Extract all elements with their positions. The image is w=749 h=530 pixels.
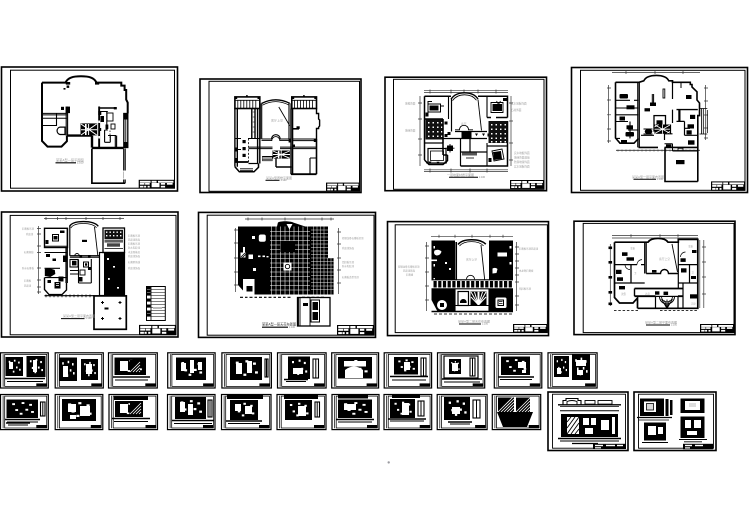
svg-text:石膏角线: 石膏角线 (24, 250, 34, 254)
svg-text:乳胶漆饰面: 乳胶漆饰面 (128, 254, 141, 258)
svg-text:石膏线: 石膏线 (406, 273, 414, 277)
svg-text:石膏板吊顶: 石膏板吊顶 (22, 227, 35, 231)
svg-text:防滑地砖饰面: 防滑地砖饰面 (514, 160, 530, 164)
svg-text:乳胶漆: 乳胶漆 (24, 284, 32, 288)
svg-text:客厅上空: 客厅上空 (466, 258, 477, 262)
svg-text:石膏阴角线: 石膏阴角线 (128, 260, 141, 264)
svg-text:石材饰面: 石材饰面 (511, 108, 522, 112)
svg-text:实木地板饰面: 实木地板饰面 (514, 151, 530, 155)
svg-text:乳胶漆饰面: 乳胶漆饰面 (342, 246, 355, 250)
svg-text:石膏板吊顶乳胶漆: 石膏板吊顶乳胶漆 (519, 247, 539, 251)
svg-text:实木地板饰面: 实木地板饰面 (514, 165, 530, 169)
svg-text:1:100: 1:100 (77, 161, 84, 165)
svg-text:主卧: 主卧 (688, 245, 694, 249)
svg-text:1:100: 1:100 (671, 324, 678, 327)
svg-text:客厅上空: 客厅上空 (659, 257, 670, 261)
svg-text:乳胶漆饰面: 乳胶漆饰面 (128, 266, 141, 270)
svg-text:轻钢龙骨石膏板吊顶: 轻钢龙骨石膏板吊顶 (342, 236, 364, 240)
svg-text:客厅上空: 客厅上空 (271, 118, 283, 123)
svg-text:一层地面材质平面图: 一层地面材质平面图 (447, 172, 474, 177)
svg-text:某某A型阁楼平面图: 某某A型阁楼平面图 (266, 175, 292, 180)
svg-text:铝扣板吊顶: 铝扣板吊顶 (519, 287, 532, 291)
svg-text:1:100: 1:100 (86, 317, 93, 320)
svg-text:防水石膏板: 防水石膏板 (22, 266, 35, 270)
svg-text:次卧: 次卧 (691, 302, 696, 306)
svg-text:次卧: 次卧 (621, 292, 627, 296)
svg-text:地砖饰面: 地砖饰面 (405, 129, 416, 133)
svg-text:防水乳胶漆: 防水乳胶漆 (342, 264, 355, 268)
svg-text:乳胶漆: 乳胶漆 (26, 232, 34, 236)
svg-text:石膏板造型吊顶: 石膏板造型吊顶 (342, 275, 359, 279)
svg-text:石膏板吊顶: 石膏板吊顶 (128, 242, 141, 246)
svg-text:主卧: 主卧 (630, 247, 636, 251)
svg-text:1:100: 1:100 (482, 323, 489, 326)
svg-text:防水乳胶漆: 防水乳胶漆 (128, 246, 141, 250)
svg-text:过道: 过道 (645, 292, 650, 296)
svg-text:石膏板吊顶: 石膏板吊顶 (128, 234, 141, 238)
svg-text:1:100: 1:100 (289, 326, 296, 329)
svg-text:地砖饰面满铺: 地砖饰面满铺 (514, 156, 530, 160)
svg-text:轻钢龙骨石膏板吊顶: 轻钢龙骨石膏板吊顶 (398, 265, 420, 269)
svg-text:木龙骨石膏板: 木龙骨石膏板 (519, 269, 534, 273)
svg-text:乳胶漆饰面: 乳胶漆饰面 (128, 238, 141, 242)
svg-text:石膏板: 石膏板 (24, 279, 32, 283)
svg-text:铝扣板吊顶: 铝扣板吊顶 (342, 260, 355, 264)
svg-text:1:100: 1:100 (657, 178, 664, 181)
svg-text:乳胶漆饰面: 乳胶漆饰面 (403, 269, 416, 273)
svg-text:1:100: 1:100 (479, 176, 486, 179)
svg-text:实木地板饰面: 实木地板饰面 (511, 102, 527, 106)
svg-text:地毯饰面: 地毯饰面 (405, 102, 416, 106)
svg-text:1:100: 1:100 (281, 179, 288, 182)
svg-text:木龙骨基层: 木龙骨基层 (128, 250, 141, 254)
